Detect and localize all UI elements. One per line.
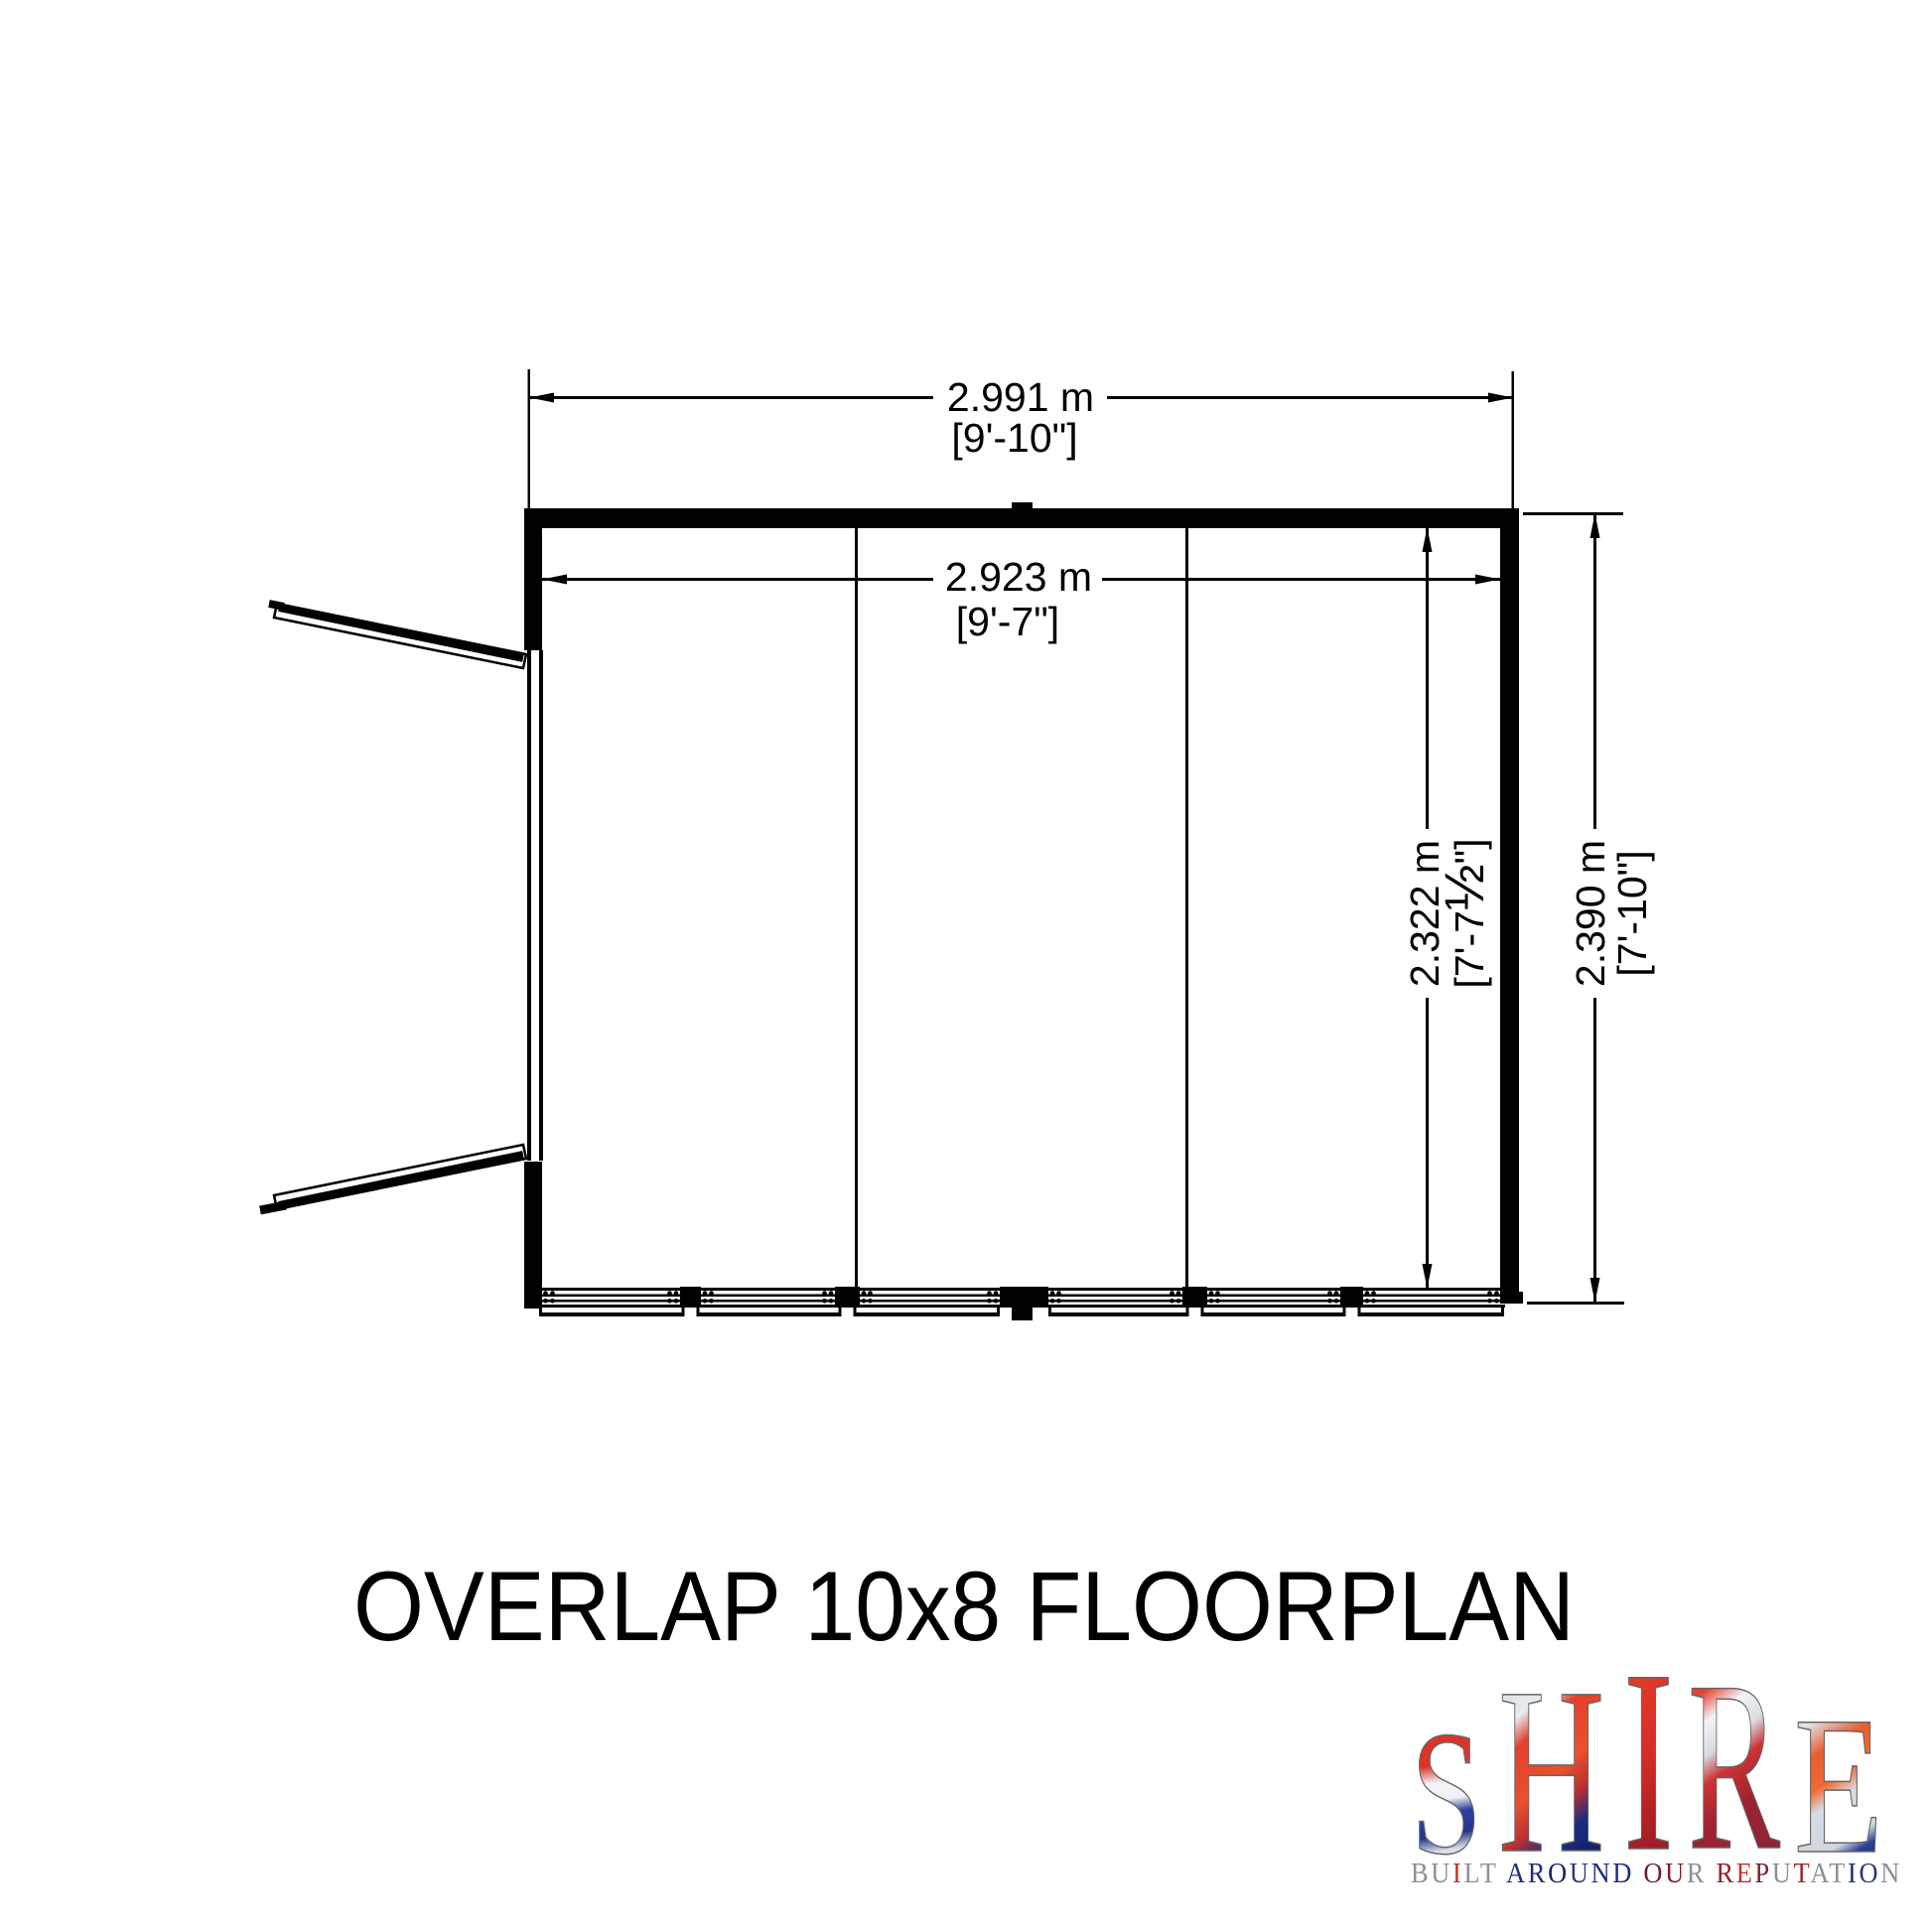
svg-text:2.991 m: 2.991 m — [947, 374, 1094, 420]
svg-text:[9'-7"]: [9'-7"] — [956, 599, 1059, 644]
svg-text:OVERLAP 10x8 FLOORPLAN: OVERLAP 10x8 FLOORPLAN — [353, 1551, 1575, 1661]
svg-text:[9'-10"]: [9'-10"] — [951, 415, 1077, 461]
svg-text:2.923 m: 2.923 m — [945, 554, 1092, 600]
svg-text:2.390 m: 2.390 m — [1568, 840, 1613, 987]
svg-text:2.322 m: 2.322 m — [1402, 840, 1448, 987]
svg-text:BUILT AROUND OUR REPUTATION: BUILT AROUND OUR REPUTATION — [1411, 1858, 1902, 1889]
svg-text:[7'-10"]: [7'-10"] — [1609, 850, 1655, 976]
